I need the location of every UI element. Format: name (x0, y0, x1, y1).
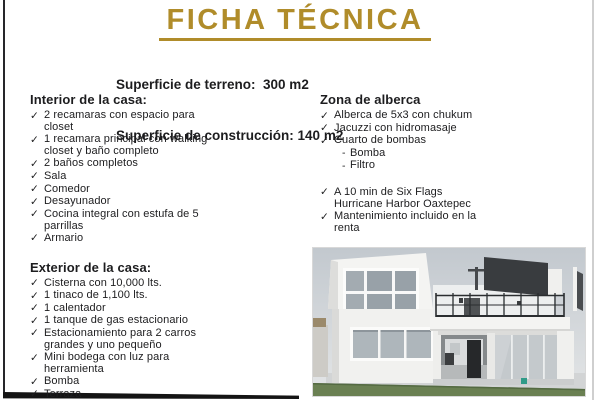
surface-land-line: Superficie de terreno: 300 m2 (116, 76, 343, 93)
list-item: ✓ Mini bodega con luz para herramienta (30, 351, 306, 375)
list-item-label: 1 recamara principal con walking closet … (44, 133, 212, 157)
list-item-label: Jacuzzi con hidromasaje (334, 122, 457, 134)
list-item: ✓ 2 baños completos (30, 157, 306, 170)
list-item: ✓ 2 recamaras con espacio para closet (30, 109, 306, 133)
terrace-dark-panel (464, 298, 480, 317)
interior-heading: Interior de la casa: (30, 92, 306, 107)
list-item-label: Terraza (44, 388, 81, 400)
list-item-label: 1 tanque de gas estacionario (44, 314, 188, 326)
sub-list-item-label: Bomba (350, 147, 385, 159)
slab-shadow (430, 329, 570, 331)
list-item: ✓ Jacuzzi con hidromasaje (320, 122, 590, 135)
slab-fascia (430, 317, 570, 331)
teal-bucket (521, 378, 527, 384)
neighbor-wall (312, 325, 328, 377)
interior-list: ✓ 2 recamaras con espacio para closet ✓ … (30, 109, 306, 245)
list-item-label: 1 tinaco de 1,100 lts. (44, 289, 148, 301)
neighbor-roof (312, 318, 326, 327)
door-column (487, 333, 495, 383)
dash-icon: - (342, 159, 350, 172)
check-icon: ✓ (30, 302, 44, 315)
list-item: ✓ A 10 min de Six Flags Hurricane Harbor… (320, 186, 590, 210)
glass-frame-2 (527, 335, 529, 381)
list-item: ✓ Terraza (30, 388, 306, 400)
right-column-wall (557, 331, 574, 383)
list-item: ✓ Alberca de 5x3 con chukum (320, 109, 590, 122)
alberca-list: ✓ Alberca de 5x3 con chukum ✓ Jacuzzi co… (320, 109, 590, 147)
list-item: ✓ Sala (30, 170, 306, 183)
check-icon: ✓ (30, 133, 44, 146)
check-icon: ✓ (30, 170, 44, 183)
check-icon: ✓ (30, 208, 44, 221)
list-item-label: 1 calentador (44, 302, 106, 314)
list-item-label: Cisterna con 10,000 lts. (44, 277, 162, 289)
exterior-section: Exterior de la casa: ✓ Cisterna con 10,0… (30, 260, 306, 400)
list-item: ✓ Mantenimiento incluido en la renta (320, 210, 590, 234)
antenna-bar (468, 269, 484, 272)
list-item-label: Estacionamiento para 2 carros grandes y … (44, 327, 212, 351)
dash-icon: - (342, 147, 350, 160)
sub-list-item-label: Filtro (350, 159, 375, 171)
right-dark-sliver (577, 271, 583, 311)
list-item-label: Alberca de 5x3 con chukum (334, 109, 472, 121)
interior-cabinet (445, 353, 454, 365)
list-item-label: A 10 min de Six Flags Hurricane Harbor O… (334, 186, 494, 210)
list-item-label: Mantenimiento incluido en la renta (334, 210, 494, 234)
right-column: Zona de alberca ✓ Alberca de 5x3 con chu… (320, 92, 590, 234)
roof-dark-box (484, 257, 548, 296)
list-item: ✓ Bomba (30, 375, 306, 388)
alberca-heading: Zona de alberca (320, 92, 590, 107)
lower-window-mullion-1 (378, 330, 381, 358)
page-left-edge (3, 0, 5, 393)
check-icon: ✓ (320, 109, 334, 122)
list-item-label: 2 baños completos (44, 157, 138, 169)
check-icon: ✓ (30, 314, 44, 327)
lower-window-mullion-2 (404, 330, 407, 358)
right-white-sliver (573, 267, 577, 311)
upper-window-mullion-h (346, 291, 416, 294)
list-item: ✓ 1 recamara principal con walking close… (30, 133, 306, 157)
sub-list-item: - Bomba (342, 147, 590, 160)
list-item: ✓ Estacionamiento para 2 carros grandes … (30, 327, 306, 351)
wall-lamp-1 (459, 298, 463, 303)
check-icon: ✓ (30, 277, 44, 290)
lower-window-glass (353, 330, 431, 358)
check-icon: ✓ (30, 388, 44, 400)
list-item: ✓ Comedor (30, 183, 306, 196)
header: FICHA TÉCNICA (0, 4, 590, 41)
list-item: ✓ Desayunador (30, 195, 306, 208)
check-icon: ✓ (30, 327, 44, 340)
check-icon: ✓ (30, 195, 44, 208)
list-item: ✓ 1 tinaco de 1,100 lts. (30, 289, 306, 302)
sub-list-item: - Filtro (342, 159, 590, 172)
check-icon: ✓ (30, 375, 44, 388)
house-exterior-photo (312, 247, 586, 397)
lower-window-top-shadow (353, 330, 431, 332)
check-icon: ✓ (30, 351, 44, 364)
check-icon: ✓ (30, 289, 44, 302)
list-item-label: Armario (44, 232, 83, 244)
list-item-label: Bomba (44, 375, 79, 387)
list-item-label: 2 recamaras con espacio para closet (44, 109, 212, 133)
check-icon: ✓ (320, 122, 334, 135)
ceiling-shade (438, 331, 564, 335)
lower-left-wall-shade (332, 309, 339, 383)
check-icon: ✓ (320, 210, 334, 223)
glass-frame-1 (511, 335, 513, 381)
list-item: ✓ Cocina integral con estufa de 5 parril… (30, 208, 306, 232)
list-item-label: Cuarto de bombas (334, 134, 426, 146)
list-item-label: Cocina integral con estufa de 5 parrilla… (44, 208, 212, 232)
check-icon: ✓ (30, 109, 44, 122)
page-right-edge (592, 0, 594, 400)
left-column: Interior de la casa: ✓ 2 recamaras con e… (30, 92, 306, 400)
check-icon: ✓ (30, 183, 44, 196)
list-item: ✓ 1 tanque de gas estacionario (30, 314, 306, 327)
exterior-list: ✓ Cisterna con 10,000 lts. ✓ 1 tinaco de… (30, 277, 306, 400)
roof-white-parapet (548, 269, 562, 295)
pump-room-sublist: - Bomba - Filtro (320, 147, 590, 172)
check-icon: ✓ (320, 186, 334, 199)
list-item-label: Sala (44, 170, 66, 182)
check-icon: ✓ (30, 157, 44, 170)
list-item-label: Desayunador (44, 195, 111, 207)
list-item: ✓ Cuarto de bombas (320, 134, 590, 147)
check-icon: ✓ (320, 134, 334, 147)
list-item: ✓ Cisterna con 10,000 lts. (30, 277, 306, 290)
list-item-label: Mini bodega con luz para herramienta (44, 351, 212, 375)
list-item: ✓ Armario (30, 232, 306, 245)
exterior-heading: Exterior de la casa: (30, 260, 306, 275)
page-title: FICHA TÉCNICA (159, 4, 432, 41)
list-item: ✓ 1 calentador (30, 302, 306, 315)
glass-frame-3 (543, 335, 545, 381)
alberca-extra-list: ✓ A 10 min de Six Flags Hurricane Harbor… (320, 186, 590, 234)
check-icon: ✓ (30, 232, 44, 245)
list-item-label: Comedor (44, 183, 90, 195)
interior-dark-door (467, 340, 481, 378)
plinth (433, 379, 574, 385)
house-photo-graphic (312, 247, 586, 397)
